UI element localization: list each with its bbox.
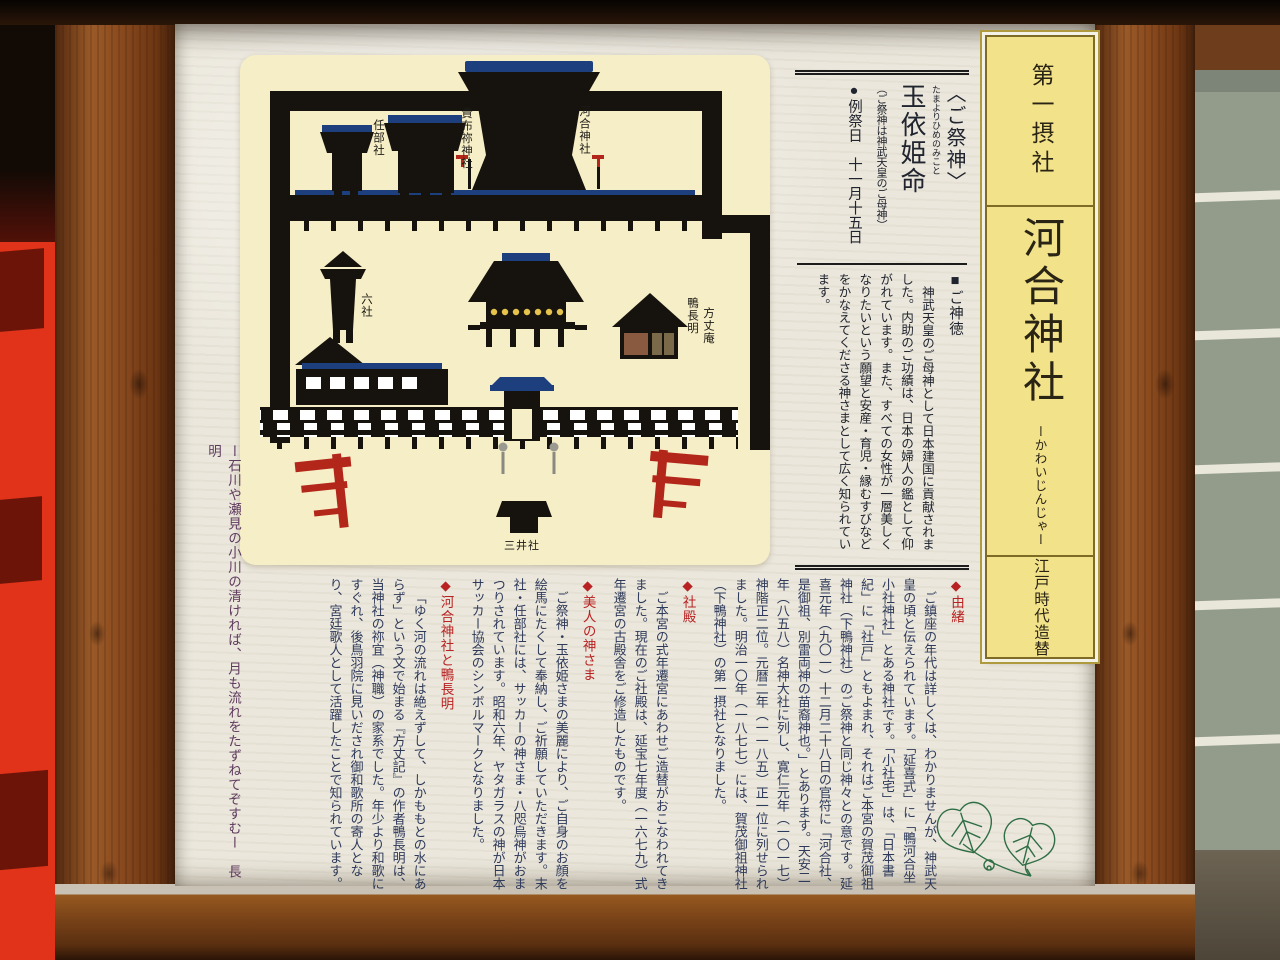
map-torii-right [645, 449, 709, 522]
shrine-map-panel: 河合神社 貴布祢神社 任部社 [240, 55, 770, 565]
map-label-hojoan: 方丈庵 [702, 306, 715, 344]
shrine-name: 河合神社 [1017, 216, 1063, 408]
photo-of-shrine-signboard: 河合神社 貴布祢神社 任部社 [0, 0, 1280, 960]
futaba-aoi-leaf-motif [933, 784, 1068, 884]
fence-beam [0, 770, 48, 870]
description-sections: ◆由緒 ご鎮座の年代は詳しくは、わかりませんが、神武天皇の頃と伝えられています。… [250, 578, 967, 894]
banner-era-note: 江戸時代造替 [987, 555, 1093, 657]
deity-header-block: 〈ご祭神〉 たまよりひめのみこと 玉依姫命 （ご祭神は神武天皇のご母神） ●例祭… [795, 70, 969, 570]
section-body: ご本宮の式年遷宮にあわせご造替がおこなわれてきました。現在のご社殿は、延宝七年度… [609, 578, 672, 894]
section-body: 「ゆく河の流れは絶えずして、しかももとの水にあらず」という文で始まる『方丈記』の… [324, 578, 429, 894]
deity-note: （ご祭神は神武天皇のご母神） [873, 83, 889, 255]
section-yuisho: ◆由緒 ご鎮座の年代は詳しくは、わかりませんが、神武天皇の頃と伝えられています。… [709, 578, 967, 894]
section-body: ご祭神・玉依姫さまの美麗により、ご自身のお顔を絵馬にたくして奉納し、ご祈願してい… [467, 578, 572, 894]
deity-furigana: たまよりひめのみこと [930, 85, 943, 175]
map-torii-left [294, 452, 357, 531]
map-label-ninbesha: 任部社 [372, 119, 385, 157]
shintoku-heading: ■ご神徳 [943, 273, 967, 559]
wood-frame-top-beam [0, 0, 1280, 25]
shintoku-section: ■ご神徳 神武天皇のご母神として日本建国に貢献されました。内助のご功績は、日本の… [797, 273, 967, 559]
map-building-haiden [468, 253, 587, 347]
deity-titles: 〈ご祭神〉 たまよりひめのみこと 玉依姫命 （ご祭神は神武天皇のご母神） ●例祭… [795, 83, 969, 255]
wood-frame-left-post [55, 0, 175, 960]
fence-beam [0, 496, 42, 584]
sign-paper: 河合神社 貴布祢神社 任部社 [175, 24, 1095, 886]
chomei-poem: ー石川や瀬見の小川の清ければ、月も流れをたずねてぞすむー 長明 [203, 444, 243, 880]
shrine-name-banner: 第一摂社 河合神社 ーかわいじんじゃー 江戸時代造替 [985, 35, 1095, 659]
section-kamo-no-chomei: ◆河合神社と鴨長明 「ゆく河の流れは絶えずして、しかももとの水にあらず」という文… [324, 578, 456, 894]
leaf-right [998, 815, 1058, 871]
section-shaden: ◆社殿 ご本宮の式年遷宮にあわせご造替がおこなわれてきました。現在のご社殿は、延… [609, 578, 699, 894]
shrine-name-furigana: ーかわいじんじゃー [1033, 425, 1047, 547]
wood-frame-bottom-board [55, 884, 1195, 960]
deity-name: たまよりひめのみこと 玉依姫命 [893, 83, 930, 255]
festival-date: ●例祭日 十一月十五日 [844, 83, 865, 255]
leaf-left [933, 798, 1000, 861]
section-heading: ◆河合神社と鴨長明 [435, 578, 457, 894]
map-building-hojoan [612, 293, 688, 359]
fence-beam [0, 248, 44, 332]
stone-wall-base [1185, 850, 1280, 960]
stone-wall [1185, 0, 1280, 960]
section-body: ご鎮座の年代は詳しくは、わかりませんが、神武天皇の頃と伝えられています。「延喜式… [709, 578, 941, 894]
shintoku-body: 神武天皇のご母神として日本建国に貢献されました。内助のご功績は、日本の婦人の鑑と… [812, 273, 937, 559]
map-label-chomei: 鴨長明 [686, 296, 699, 334]
section-bijin-no-kami: ◆美人の神さま ご祭神・玉依姫さまの美麗により、ご自身のお顔を絵馬にたくして奉納… [467, 578, 599, 894]
map-corridor [260, 407, 738, 449]
section-heading: ◆社殿 [677, 578, 699, 894]
deity-bracket-title: 〈ご祭神〉 [940, 83, 969, 255]
map-building-west-cluster [295, 337, 448, 405]
banner-rank: 第一摂社 [987, 37, 1093, 207]
map-label-kawai: 河合神社 [578, 105, 591, 155]
map-label-kifune: 貴布祢神社 [460, 106, 473, 169]
map-building-mitsuisha [496, 501, 552, 533]
map-label-mitsuisha: 三井社 [504, 538, 540, 552]
map-label-rokusha: 六社 [360, 293, 373, 318]
banner-title: 河合神社 ーかわいじんじゃー [987, 207, 1093, 555]
fence-shadow-top [0, 0, 58, 242]
rule-divider [797, 263, 967, 265]
shrine-map-illustration: 河合神社 貴布祢神社 任部社 [240, 55, 770, 565]
section-heading: ◆美人の神さま [577, 578, 599, 894]
wood-frame-right-post [1095, 0, 1195, 960]
